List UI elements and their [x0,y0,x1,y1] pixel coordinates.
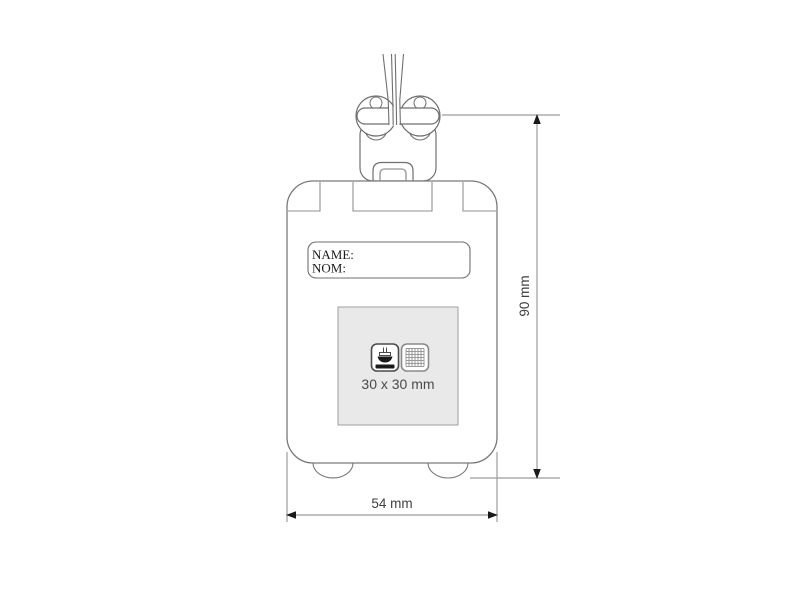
height-dimension-label: 90 mm [517,275,532,316]
luggage-tag-drawing: 90 mm 54 mm [0,0,800,600]
strap [383,54,404,100]
nom-label: NOM: [312,261,346,276]
tag-foot-left [313,463,353,478]
strap-line [400,100,401,125]
ring-hole-right [414,97,426,109]
pad-print-icon [372,344,399,371]
width-dimension-label: 54 mm [371,496,412,511]
strap-line [392,54,393,100]
name-plate: NAME: NOM: [308,242,470,278]
print-area-label: 30 x 30 mm [361,376,434,392]
strap-overlay [389,107,400,126]
strap-line [395,54,396,100]
ring-hole-left [370,97,382,109]
screen-grid [406,349,424,367]
product-diagram: 90 mm 54 mm [0,0,800,600]
print-area: 30 x 30 mm [338,307,458,425]
strap-line [400,54,404,100]
screen-print-icon [402,344,429,371]
strap-line [383,54,388,100]
tag-foot-right [428,463,468,478]
